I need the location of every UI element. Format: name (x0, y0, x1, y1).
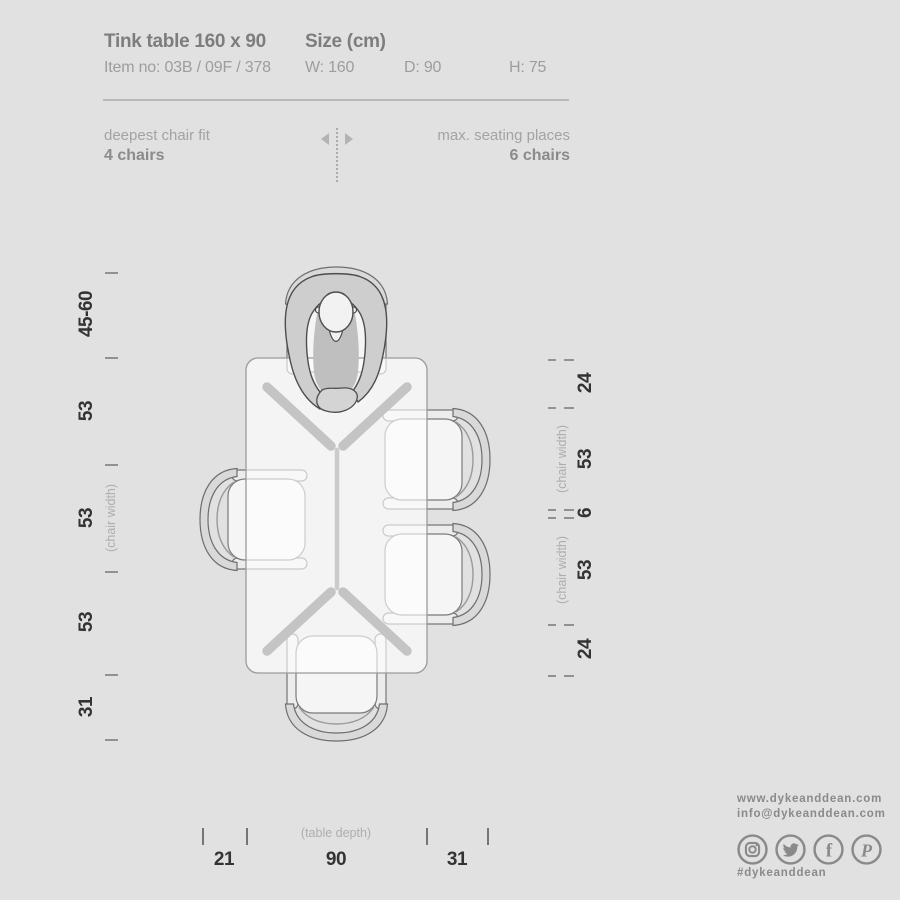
tick (548, 407, 556, 409)
chair-left (200, 469, 307, 571)
chair-right-top (383, 409, 490, 511)
tick (105, 674, 118, 676)
tick (202, 828, 204, 845)
social-icons: f P (737, 834, 882, 865)
tick (564, 517, 574, 519)
dim-left-1: 53 (76, 401, 98, 421)
seated-person (285, 274, 386, 413)
tick (548, 517, 556, 519)
dim-right-0: 24 (575, 373, 597, 393)
tick (105, 739, 118, 741)
deepest-chair-fit-value: 4 chairs (104, 147, 164, 165)
dim-left-0: 45-60 (76, 291, 98, 337)
twitter-icon[interactable] (775, 834, 806, 865)
person-hands (317, 388, 358, 412)
max-seating-label: max. seating places (360, 127, 570, 144)
footer-website: www.dykeanddean.com (737, 793, 882, 805)
item-number: Item no: 03B / 09F / 378 (104, 59, 271, 77)
dim-bottom-0: 21 (214, 849, 234, 871)
tick (564, 675, 574, 677)
size-depth: D: 90 (404, 59, 441, 77)
dim-right-3: 53 (575, 560, 597, 580)
table-depth-note: (table depth) (301, 826, 371, 840)
chair-width-note-left: (chair width) (104, 484, 118, 552)
dim-right-2: 6 (575, 508, 597, 518)
footer-hashtag: #dykeanddean (737, 867, 827, 879)
tick (105, 357, 118, 359)
dim-right-1: 53 (575, 449, 597, 469)
svg-text:f: f (826, 841, 833, 862)
tick (246, 828, 248, 845)
tick (105, 464, 118, 466)
dim-right-4: 24 (575, 639, 597, 659)
chair-width-note-right-bottom: (chair width) (555, 536, 569, 604)
chair-bottom-end (286, 634, 388, 741)
dim-left-3: 53 (76, 612, 98, 632)
person-head (319, 292, 353, 332)
max-seating-value: 6 chairs (360, 147, 570, 165)
size-height: H: 75 (509, 59, 546, 77)
tick (564, 624, 574, 626)
arrow-right-icon (345, 133, 353, 145)
instagram-icon[interactable] (737, 834, 768, 865)
tick (105, 272, 118, 274)
size-width: W: 160 (305, 59, 354, 77)
tick (548, 509, 556, 511)
tick (564, 359, 574, 361)
chair-right-bottom (383, 524, 490, 626)
size-label: Size (cm) (305, 31, 386, 53)
tick (487, 828, 489, 845)
tick (548, 359, 556, 361)
table-trestle-legs (267, 387, 407, 651)
spec-sheet: Tink table 160 x 90 Item no: 03B / 09F /… (0, 0, 900, 900)
footer-email: info@dykeanddean.com (737, 808, 886, 820)
tick (548, 675, 556, 677)
person-arms (285, 274, 386, 409)
facebook-icon[interactable]: f (813, 834, 844, 865)
dotted-center-line (336, 128, 338, 182)
chair-width-note-right-top: (chair width) (555, 425, 569, 493)
tick (548, 624, 556, 626)
pinterest-icon[interactable]: P (851, 834, 882, 865)
deepest-chair-fit-label: deepest chair fit (104, 127, 210, 144)
arrow-left-icon (321, 133, 329, 145)
svg-text:P: P (860, 840, 873, 860)
tick (426, 828, 428, 845)
dim-bottom-1: 90 (326, 849, 346, 871)
tick (564, 407, 574, 409)
header-divider (103, 99, 569, 101)
person-torso (313, 308, 359, 398)
dim-left-2: 53 (76, 508, 98, 528)
chair-top-end (286, 267, 388, 374)
dim-left-4: 31 (76, 697, 98, 717)
page-title: Tink table 160 x 90 (104, 31, 266, 53)
tick (564, 509, 574, 511)
table-top (246, 358, 427, 673)
tick (105, 571, 118, 573)
dim-bottom-2: 31 (447, 849, 467, 871)
